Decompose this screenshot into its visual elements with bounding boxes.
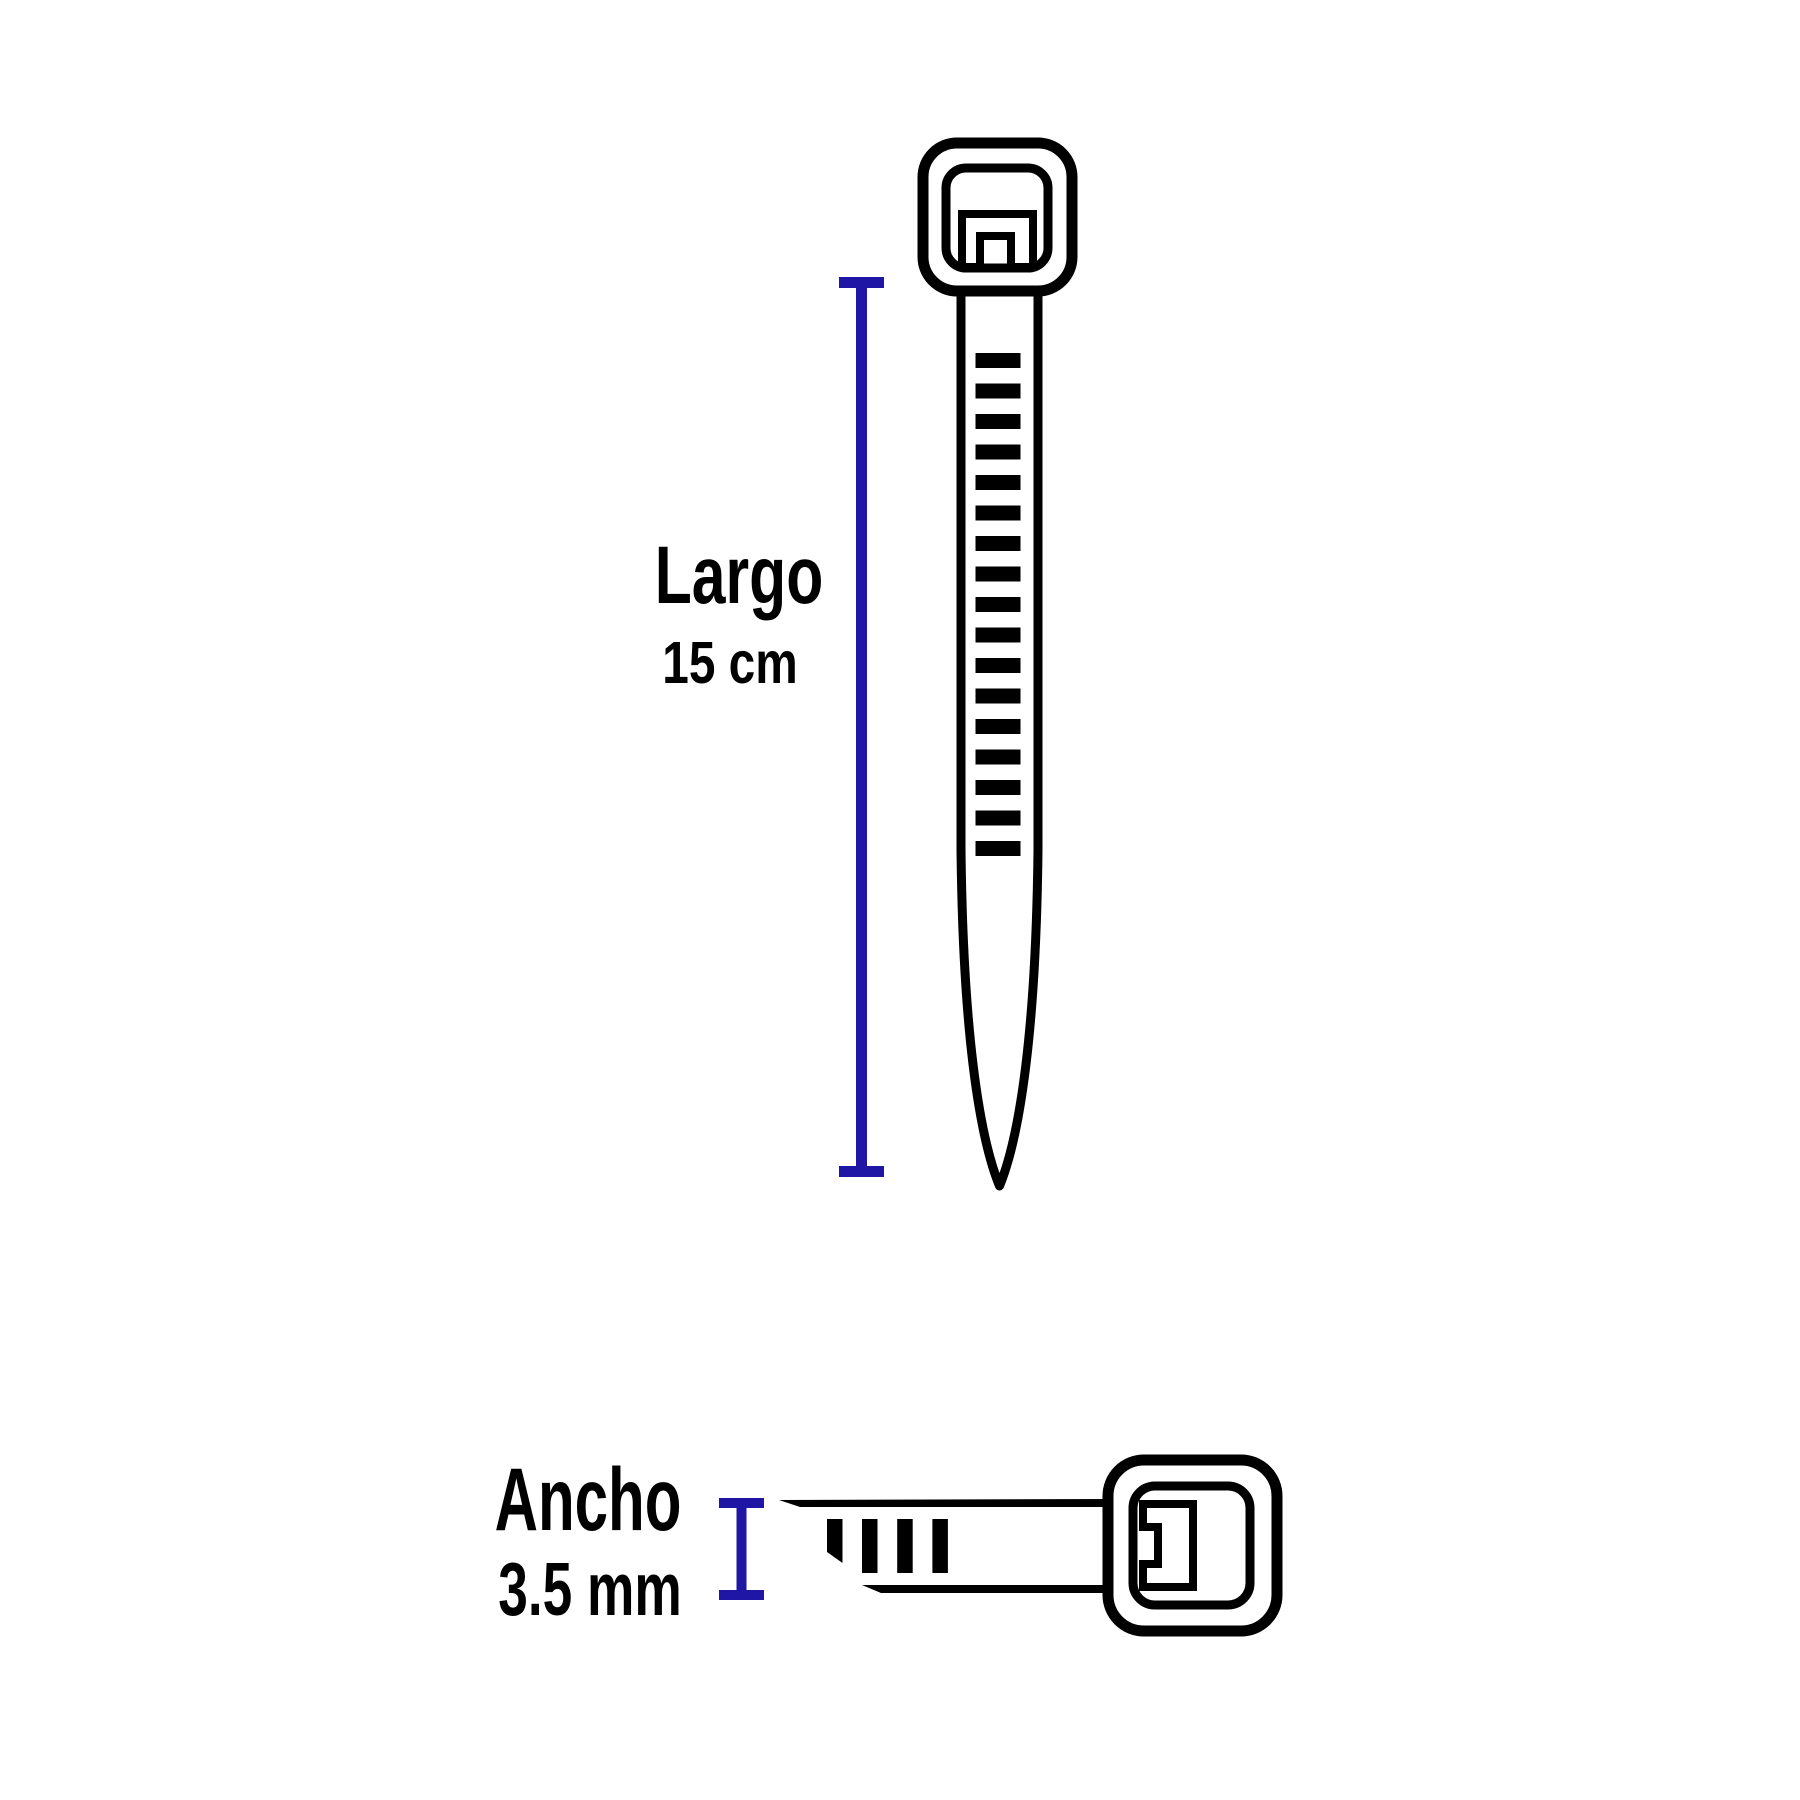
strap-tooth: [976, 811, 1021, 826]
tie-strap-bottom-edge: [862, 1585, 1113, 1593]
strap-tooth: [976, 567, 1021, 582]
strap-tooth: [932, 1519, 948, 1573]
vertical-strap-teeth: [976, 353, 1021, 856]
dimension-width: Ancho 3.5 mm: [495, 1450, 764, 1631]
strap-tooth: [976, 689, 1021, 704]
strap-tooth: [976, 628, 1021, 643]
strap-tooth: [976, 506, 1021, 521]
width-value: 3.5 mm: [498, 1547, 681, 1631]
strap-tooth: [862, 1519, 878, 1573]
strap-tooth: [976, 414, 1021, 429]
figure: Largo 15 cm Ancho 3.5 mm: [0, 0, 1800, 1800]
diagram-canvas: Largo 15 cm Ancho 3.5 mm: [0, 0, 1800, 1800]
strap-tooth: [976, 384, 1021, 399]
horizontal-strap-teeth: [862, 1519, 948, 1573]
strap-tooth: [976, 780, 1021, 795]
strap-tooth: [976, 445, 1021, 460]
dimension-length: Largo 15 cm: [655, 283, 884, 1172]
strap-tooth: [976, 750, 1021, 765]
length-dimension-line: [839, 283, 884, 1172]
width-label: Ancho: [495, 1450, 682, 1550]
length-label: Largo: [655, 530, 824, 621]
strap-tooth: [897, 1519, 913, 1573]
strap-tooth: [976, 353, 1021, 368]
strap-tooth: [976, 719, 1021, 734]
strap-tooth: [976, 597, 1021, 612]
cable-tie-horizontal: [779, 1460, 1277, 1631]
strap-tooth: [976, 658, 1021, 673]
cable-tie-vertical: [923, 143, 1072, 1186]
strap-tooth: [976, 475, 1021, 490]
strap-tooth: [976, 536, 1021, 551]
length-value: 15 cm: [662, 630, 797, 696]
tie-strap-top-edge: [779, 1499, 1113, 1507]
strap-tooth-wedge: [827, 1519, 843, 1563]
strap-tooth: [976, 841, 1021, 856]
width-dimension-line: [719, 1503, 764, 1595]
